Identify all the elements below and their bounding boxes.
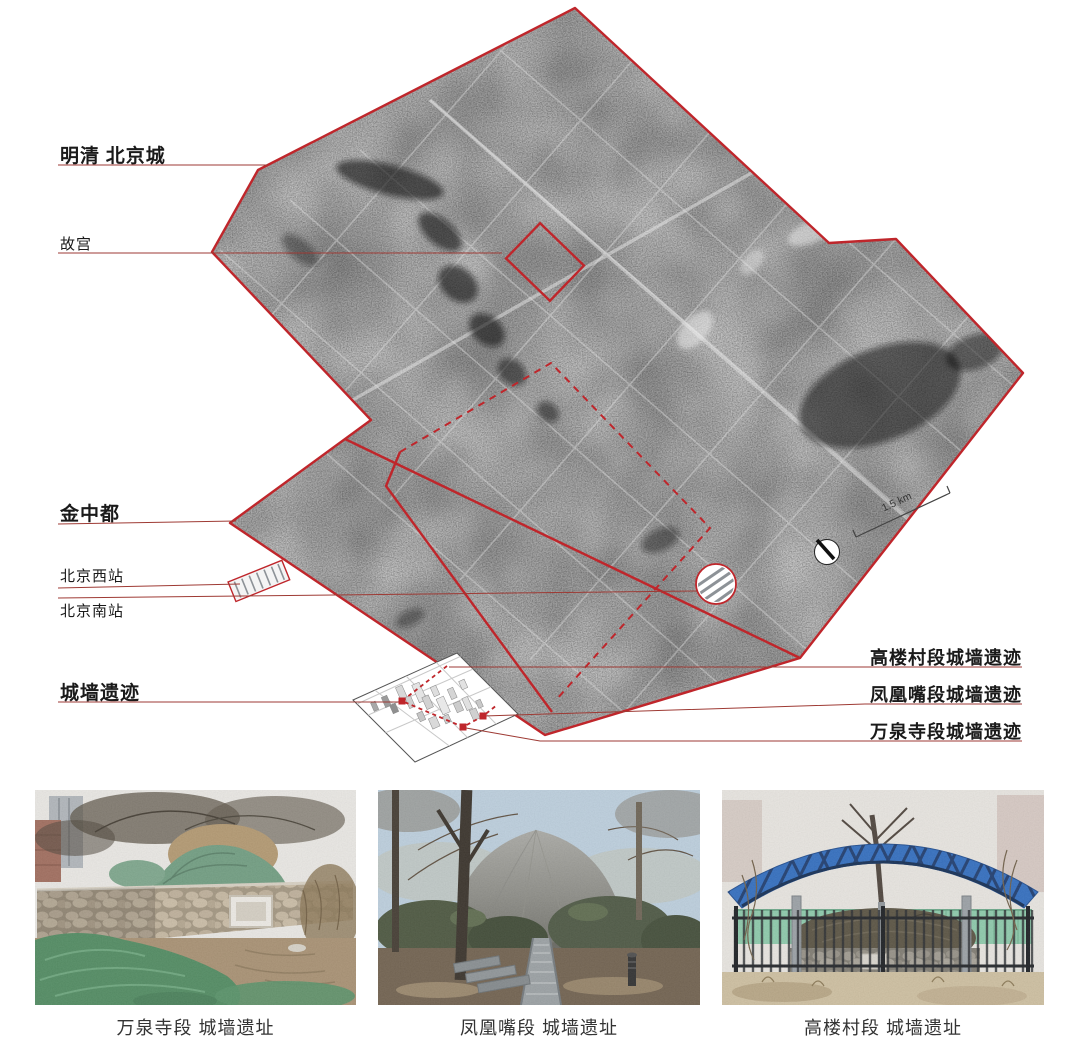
label-wanquansi-section: 万泉寺段城墙遗迹 [870,718,1022,744]
caption-gaoloucun: 高楼村段 城墙遗址 [722,1014,1044,1040]
label-gaoloucun-section: 高楼村段城墙遗迹 [870,644,1022,670]
label-forbidden-city: 故宫 [60,233,92,254]
photo-wanquansi-wall-ruins [35,790,356,1005]
label-wall-remains: 城墙遗迹 [60,678,140,705]
photo-fenghuangzui-wall-ruins [378,790,700,1005]
caption-wanquansi: 万泉寺段 城墙遗址 [35,1014,356,1040]
beijing-city-wall-figure: 1.5 km 明清 北京城 故宫 金中都 北京西站 北京南站 城墙遗迹 高楼村段… [0,0,1080,1042]
label-beijing-south-station: 北京南站 [60,600,124,621]
caption-fenghuangzui: 凤凰嘴段 城墙遗址 [378,1014,700,1040]
label-jin-zhongdu: 金中都 [60,499,120,526]
north-arrow-icon [815,540,840,565]
label-beijing-west-station: 北京西站 [60,565,124,586]
label-mingqing-beijing: 明清 北京城 [60,141,166,168]
label-fenghuangzui-section: 凤凰嘴段城墙遗迹 [870,681,1022,707]
photo-gaoloucun-wall-ruins [722,790,1044,1005]
